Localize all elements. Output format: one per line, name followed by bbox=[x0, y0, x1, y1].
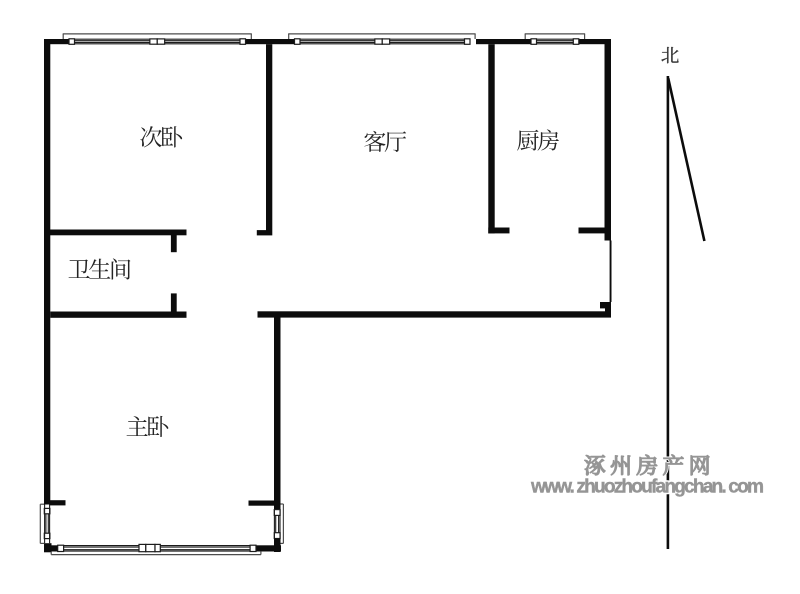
svg-text:www. zhuozhoufangchan. com: www. zhuozhoufangchan. com bbox=[530, 477, 764, 498]
